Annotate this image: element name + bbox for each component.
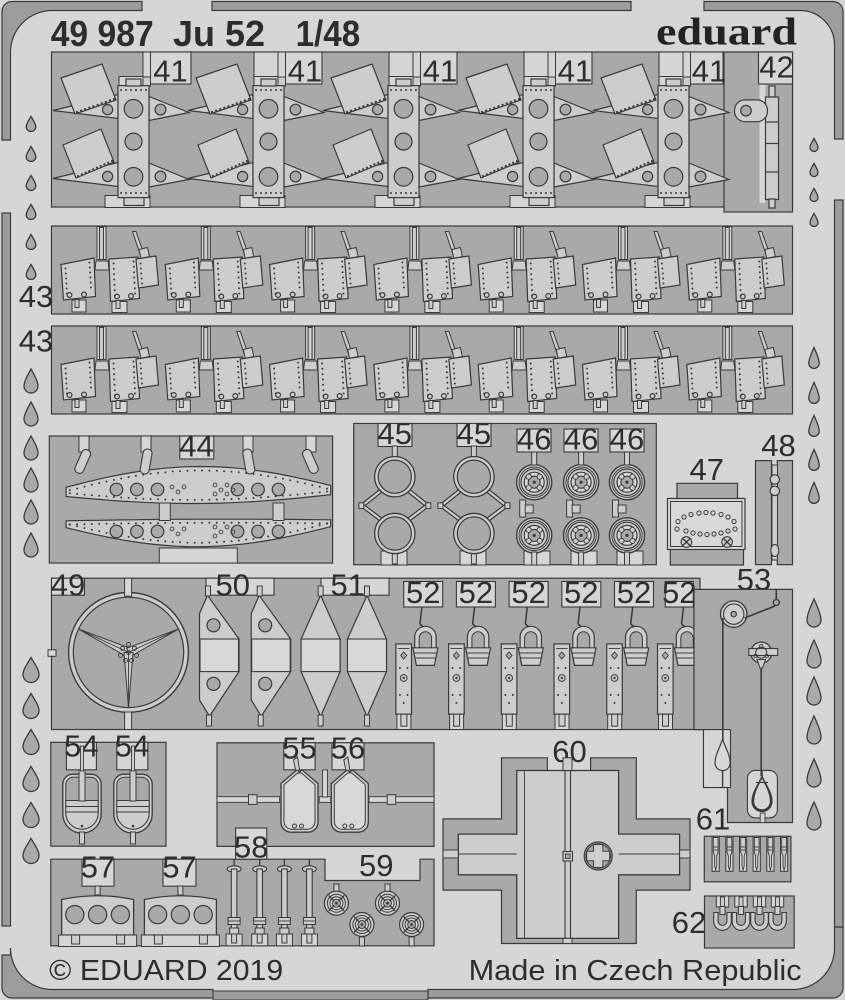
svg-text:52: 52 [617,575,651,610]
svg-text:52: 52 [564,575,598,610]
svg-text:44: 44 [179,429,213,464]
svg-text:41: 41 [153,54,187,89]
svg-text:59: 59 [359,848,393,883]
svg-text:eduard: eduard [656,11,797,54]
svg-text:48: 48 [761,428,795,463]
svg-text:43: 43 [19,279,53,314]
svg-text:47: 47 [690,452,724,487]
svg-text:46: 46 [564,422,598,457]
svg-text:Ju 52: Ju 52 [173,13,265,54]
svg-text:57: 57 [162,850,196,885]
svg-text:46: 46 [610,422,644,457]
svg-text:52: 52 [459,575,493,610]
svg-text:42: 42 [759,50,793,85]
svg-text:1/48: 1/48 [296,13,361,54]
svg-text:50: 50 [216,568,250,603]
svg-text:62: 62 [672,905,706,940]
svg-text:51: 51 [331,568,365,603]
svg-text:Made in Czech Republic: Made in Czech Republic [469,955,802,987]
svg-text:57: 57 [81,850,115,885]
svg-text:52: 52 [511,575,545,610]
svg-text:52: 52 [662,575,696,610]
svg-text:49 987: 49 987 [51,13,154,54]
svg-text:55: 55 [282,731,316,766]
svg-text:41: 41 [288,54,322,89]
svg-text:41: 41 [692,54,726,89]
svg-text:41: 41 [558,54,592,89]
svg-text:52: 52 [406,575,440,610]
svg-text:41: 41 [423,54,457,89]
svg-text:© EDUARD 2019: © EDUARD 2019 [49,955,283,987]
svg-text:43: 43 [19,324,53,359]
svg-text:46: 46 [517,422,551,457]
svg-text:49: 49 [51,568,85,603]
svg-text:58: 58 [234,830,268,865]
svg-text:61: 61 [696,802,730,837]
